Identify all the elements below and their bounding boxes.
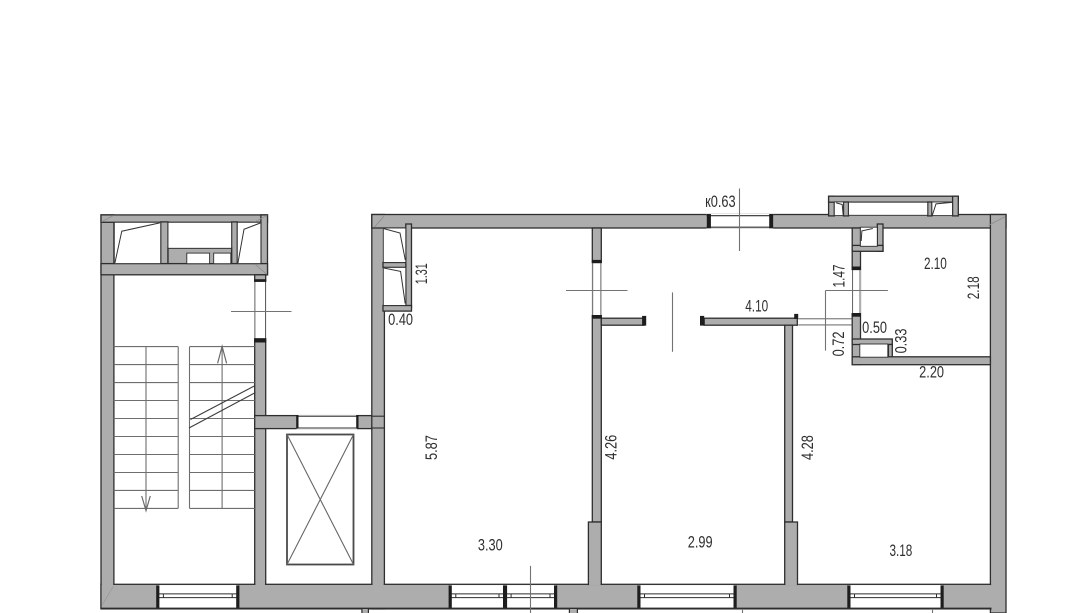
svg-text:0.50: 0.50 (862, 320, 887, 338)
svg-text:к0.63: к0.63 (705, 194, 735, 212)
svg-text:4.28: 4.28 (800, 435, 818, 460)
svg-text:2.10: 2.10 (924, 255, 947, 273)
svg-text:4.26: 4.26 (603, 435, 621, 460)
svg-text:0.40: 0.40 (388, 311, 413, 329)
svg-text:0.33: 0.33 (893, 329, 911, 354)
svg-text:4.10: 4.10 (745, 298, 768, 316)
svg-text:1.47: 1.47 (830, 265, 848, 288)
svg-text:3.18: 3.18 (889, 542, 912, 560)
svg-text:3.30: 3.30 (478, 537, 503, 555)
svg-text:1.31: 1.31 (412, 263, 431, 284)
svg-text:5.87: 5.87 (423, 435, 441, 460)
svg-text:2.18: 2.18 (965, 276, 983, 299)
svg-text:2.20: 2.20 (919, 364, 944, 382)
svg-text:2.99: 2.99 (688, 534, 713, 552)
svg-text:0.72: 0.72 (831, 332, 849, 357)
